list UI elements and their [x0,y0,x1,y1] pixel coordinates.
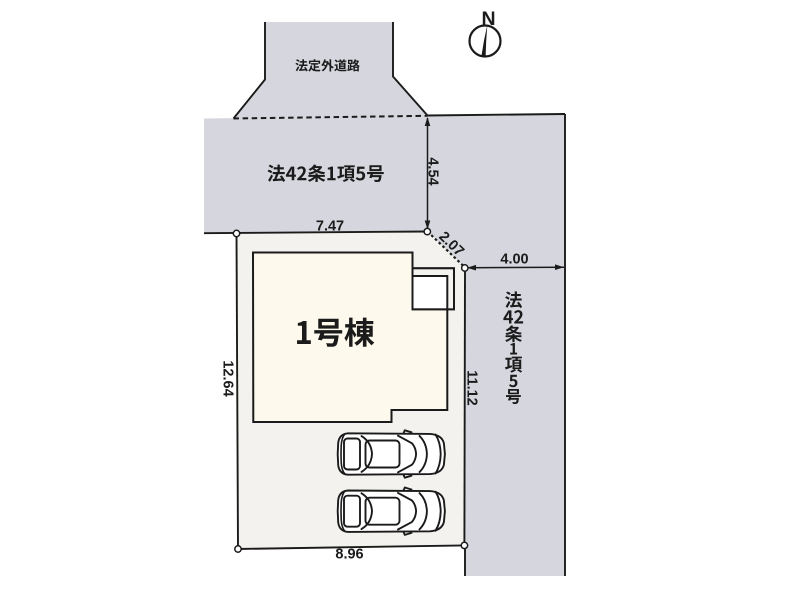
svg-text:8.96: 8.96 [335,547,363,563]
svg-text:4.54: 4.54 [424,157,440,185]
svg-text:4.00: 4.00 [500,252,528,268]
svg-text:11.12: 11.12 [464,370,480,406]
svg-text:N: N [481,8,495,30]
svg-text:7.47: 7.47 [316,219,344,235]
svg-text:12.64: 12.64 [220,360,236,396]
